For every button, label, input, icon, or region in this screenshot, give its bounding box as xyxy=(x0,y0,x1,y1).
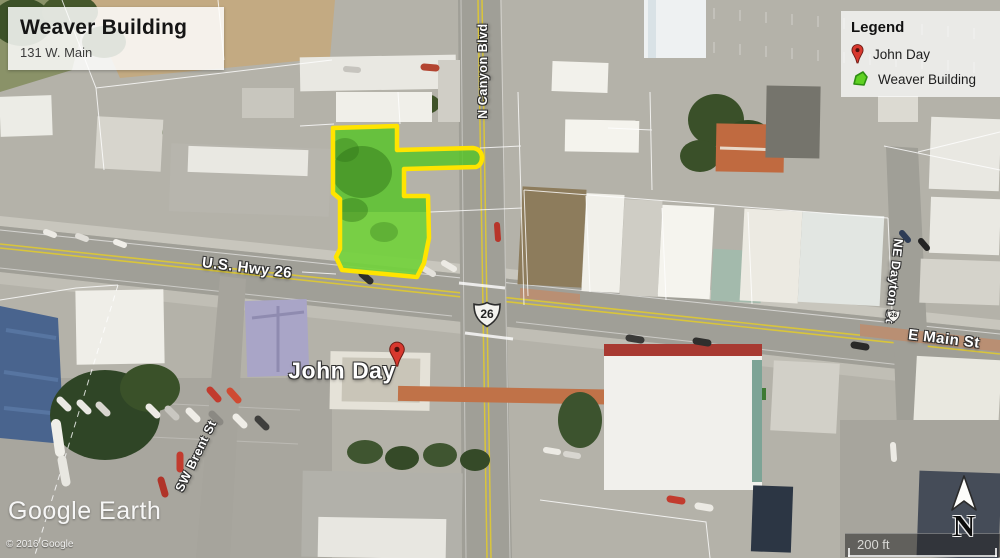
legend-item-weaver-building: Weaver Building xyxy=(851,70,1000,88)
north-indicator: N xyxy=(944,474,984,540)
map-canvas[interactable]: U.S. Hwy 26 N Canyon Blvd E Main St NE D… xyxy=(0,0,1000,558)
google-earth-logo: Google Earth xyxy=(8,497,161,526)
legend-item-label: Weaver Building xyxy=(878,72,976,87)
red-pin-icon xyxy=(851,44,864,64)
scale-bar-label: 200 ft xyxy=(857,537,890,552)
page-subtitle: 131 W. Main xyxy=(20,45,212,60)
legend-item-john-day: John Day xyxy=(851,44,1000,64)
title-card: Weaver Building 131 W. Main xyxy=(8,7,224,70)
john-day-pin-icon[interactable] xyxy=(389,341,405,368)
legend-item-label: John Day xyxy=(873,47,930,62)
route-26-shield-icon: 26 xyxy=(472,301,502,328)
route-26-shield-small-icon: 26 xyxy=(886,309,901,323)
street-label-n-canyon-blvd: N Canyon Blvd xyxy=(476,23,490,118)
north-letter: N xyxy=(944,508,984,544)
scale-bar-tick-left xyxy=(848,548,850,557)
scale-bar-line xyxy=(848,555,997,557)
green-parcel-icon xyxy=(851,70,869,88)
legend-header: Legend xyxy=(851,19,1000,36)
legend-panel: Legend John Day Weaver Building xyxy=(841,11,1000,97)
copyright-text: © 2016 Google xyxy=(6,539,73,550)
placemark-label-john-day: John Day xyxy=(288,358,396,385)
scale-bar-tick-right xyxy=(995,548,997,557)
page-title: Weaver Building xyxy=(20,16,212,40)
